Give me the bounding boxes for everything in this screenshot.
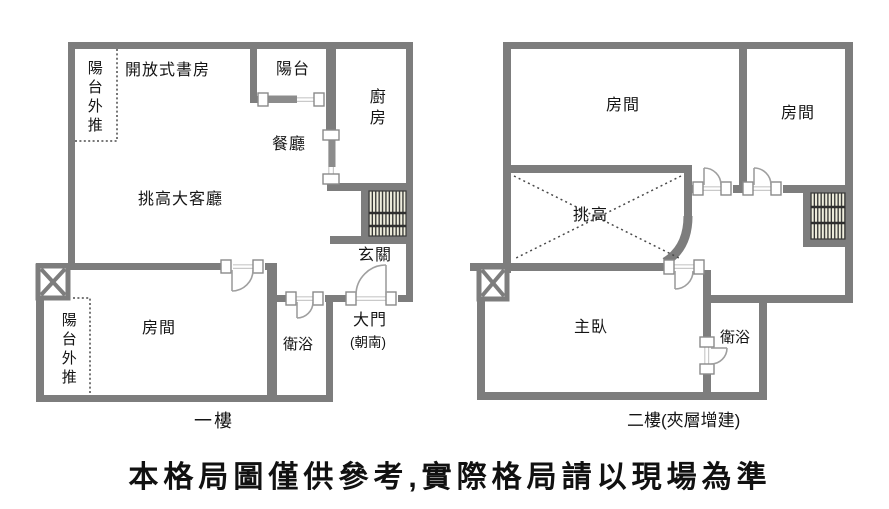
label-room-f2-left: 房間	[606, 98, 640, 115]
label-open-study: 開放式書房	[125, 63, 210, 80]
floor2-walls	[470, 42, 853, 400]
floor2-shaft-x-icon	[479, 267, 507, 299]
label-master-bedroom: 主臥	[574, 320, 608, 337]
label-bath-f2: 衛浴	[720, 330, 750, 346]
label-main-door: 大門	[353, 313, 387, 330]
label-bath-f1: 衛浴	[283, 337, 313, 353]
caption-floor2: 二樓(夾層增建)	[627, 412, 740, 430]
label-balcony-pushout-bottom: 陽台外推	[60, 312, 76, 388]
label-kitchen: 廚房	[366, 88, 383, 130]
label-room-f1: 房間	[142, 321, 176, 338]
label-balcony: 陽台	[276, 62, 310, 79]
caption-floor1: 一樓	[194, 412, 234, 431]
disclaimer-text: 本格局圖僅供參考,實際格局請以現場為準	[128, 452, 771, 496]
floor2-curved-wall	[665, 216, 688, 262]
label-main-door-facing: (朝南)	[350, 336, 386, 350]
floor2-stairs-icon	[811, 193, 845, 239]
label-entry: 玄關	[358, 248, 392, 265]
label-balcony-pushout-top: 陽台外推	[86, 60, 102, 136]
label-room-f2-right: 房間	[781, 106, 815, 123]
floor1-shaft-x-icon	[38, 266, 68, 298]
label-dining: 餐廳	[272, 137, 306, 154]
label-living-room: 挑高大客廳	[138, 192, 223, 209]
floorplan-page: 陽台外推 開放式書房 陽台 廚房 餐廳 挑高大客廳 玄關 房間 衛浴 大門 (朝…	[0, 0, 889, 509]
label-void: 挑高	[573, 208, 609, 225]
floor1-stairs-icon	[369, 191, 406, 236]
